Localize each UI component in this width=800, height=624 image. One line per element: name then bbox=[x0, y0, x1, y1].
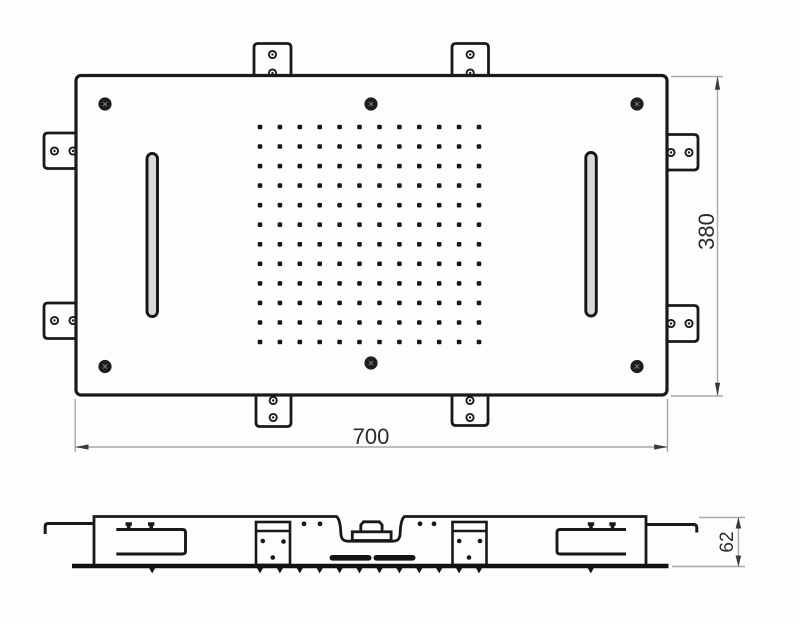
svg-text:380: 380 bbox=[694, 213, 719, 250]
svg-text:62: 62 bbox=[717, 531, 738, 552]
svg-text:700: 700 bbox=[353, 424, 390, 449]
